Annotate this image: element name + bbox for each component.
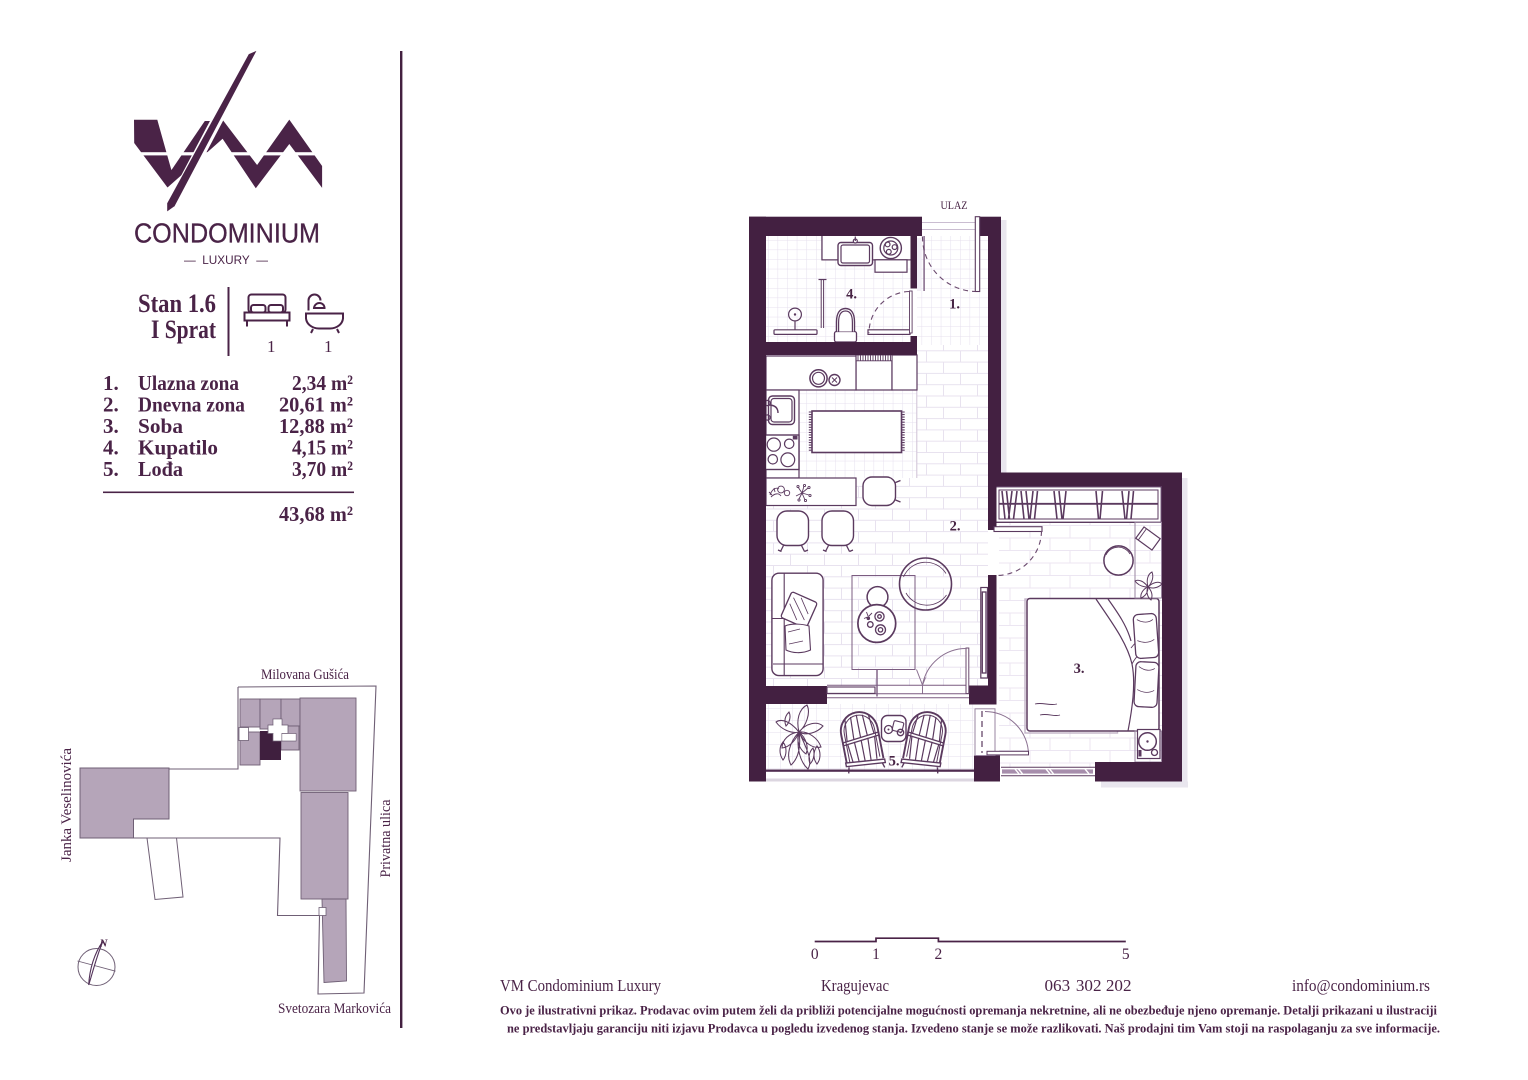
- svg-text:063 302 202: 063 302 202: [1045, 976, 1132, 995]
- svg-text:2,34 m²: 2,34 m²: [292, 371, 353, 395]
- svg-text:Ovo je ilustrativni prikaz. Pr: Ovo je ilustrativni prikaz. Prodavac ovi…: [500, 1003, 1437, 1018]
- svg-text:Soba: Soba: [138, 414, 184, 438]
- svg-text:Kupatilo: Kupatilo: [138, 436, 218, 460]
- svg-text:1.: 1.: [103, 371, 119, 395]
- svg-text:N: N: [99, 938, 109, 950]
- svg-text:12,88 m²: 12,88 m²: [279, 414, 353, 438]
- svg-text:info@condominium.rs: info@condominium.rs: [1292, 976, 1430, 995]
- svg-text:Svetozara Markovića: Svetozara Markovića: [278, 1001, 391, 1017]
- svg-text:— LUXURY —: — LUXURY —: [184, 255, 269, 267]
- svg-text:1: 1: [872, 946, 880, 963]
- svg-text:VM Condominium Luxury: VM Condominium Luxury: [500, 976, 661, 995]
- svg-text:2: 2: [935, 946, 943, 963]
- svg-text:1: 1: [324, 337, 333, 356]
- svg-text:Milovana Gušića: Milovana Gušića: [261, 667, 349, 683]
- svg-text:3.: 3.: [103, 414, 119, 438]
- svg-text:3.: 3.: [1074, 661, 1085, 677]
- svg-text:I Sprat: I Sprat: [151, 315, 216, 344]
- svg-text:43,68 m²: 43,68 m²: [279, 502, 353, 526]
- svg-text:Privatna ulica: Privatna ulica: [378, 799, 394, 877]
- svg-text:5.: 5.: [103, 457, 119, 481]
- svg-text:Janka Veselinovića: Janka Veselinovića: [59, 748, 75, 862]
- svg-text:0: 0: [811, 946, 819, 963]
- svg-text:2.: 2.: [103, 393, 119, 417]
- svg-text:4,15 m²: 4,15 m²: [292, 436, 353, 460]
- svg-text:Stan 1.6: Stan 1.6: [138, 289, 216, 318]
- svg-text:2.: 2.: [950, 519, 961, 535]
- svg-text:1: 1: [267, 337, 276, 356]
- svg-text:ULAZ: ULAZ: [941, 200, 968, 212]
- svg-text:4.: 4.: [103, 436, 119, 460]
- svg-text:Kragujevac: Kragujevac: [821, 976, 889, 995]
- svg-text:3,70 m²: 3,70 m²: [292, 457, 353, 481]
- svg-text:ne predstavljaju garanciju nit: ne predstavljaju garanciju niti izjavu P…: [507, 1021, 1440, 1036]
- svg-text:4.: 4.: [846, 287, 857, 303]
- svg-text:1.: 1.: [949, 297, 960, 313]
- svg-text:Lođa: Lođa: [138, 457, 183, 481]
- svg-text:5.: 5.: [889, 754, 900, 770]
- svg-text:5: 5: [1122, 946, 1130, 963]
- svg-text:20,61 m²: 20,61 m²: [279, 393, 353, 417]
- svg-text:CONDOMINIUM: CONDOMINIUM: [134, 218, 320, 249]
- svg-text:Ulazna zona: Ulazna zona: [138, 371, 239, 395]
- svg-text:Dnevna zona: Dnevna zona: [138, 393, 245, 417]
